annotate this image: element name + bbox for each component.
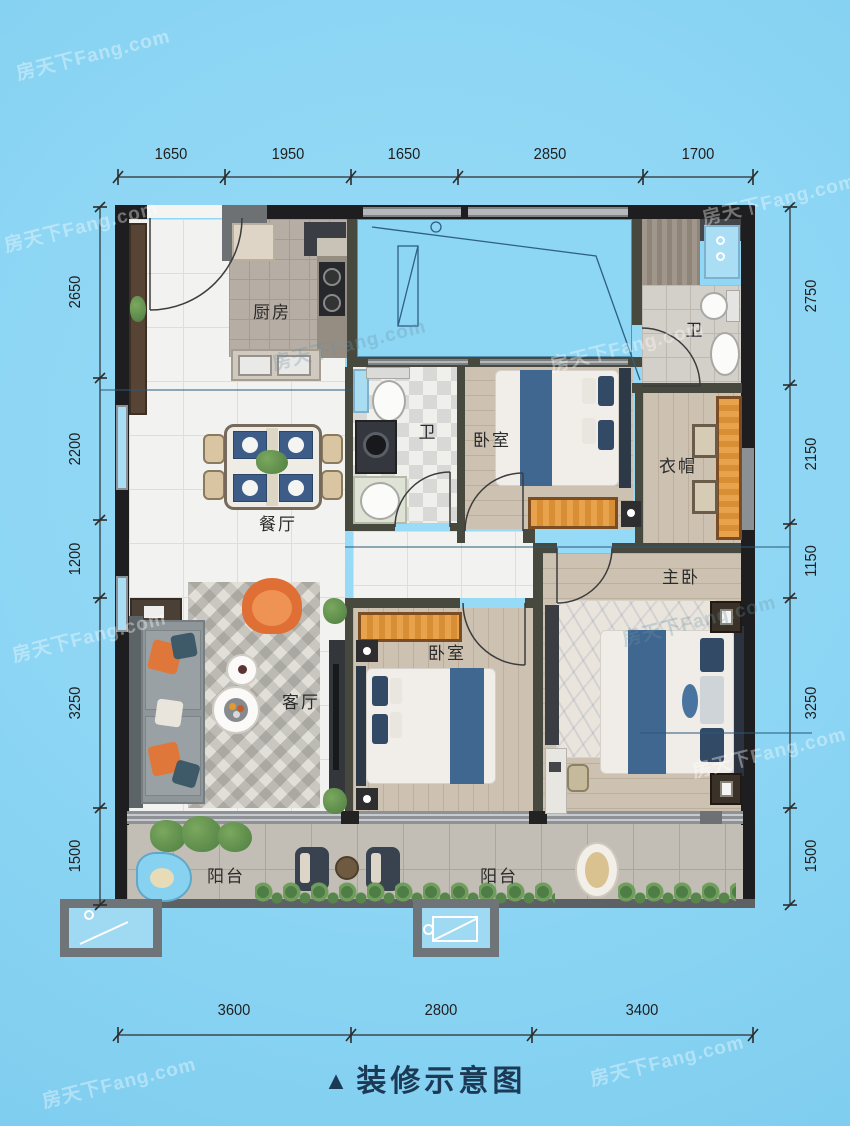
dimension-and-annotation-lines [0,0,850,1126]
room-label-balcony-left: 阳台 [192,862,260,887]
floorplan-scene: 1650 1950 1650 2850 1700 2650 2200 1200 … [0,0,850,1126]
dim-right-4: 3250 [803,675,821,730]
room-label-master-bedroom: 主卧 [647,563,715,588]
dim-bottom-2: 2800 [413,1002,468,1020]
room-label-cloakroom: 衣帽 [644,452,712,477]
dim-bottom-1: 3600 [206,1002,261,1020]
dim-left-5: 1500 [67,828,85,883]
room-label-bath-middle: 卫 [416,418,440,443]
dim-top-2: 1950 [260,146,315,164]
room-label-dining: 餐厅 [244,510,312,535]
room-label-balcony-right: 阳台 [465,862,533,887]
dim-right-2: 2150 [803,426,821,481]
dim-top-1: 1650 [143,146,198,164]
dim-right-3: 1150 [803,533,821,588]
dim-left-1: 2650 [67,264,85,319]
room-label-bedroom-lower: 卧室 [413,639,481,664]
dim-top-4: 2850 [522,146,577,164]
dim-left-2: 2200 [67,421,85,476]
room-label-kitchen: 厨房 [238,298,306,323]
room-label-living-room: 客厅 [267,688,335,713]
caption-triangle-icon: ▲ [324,1067,349,1095]
dim-left-4: 3250 [67,675,85,730]
dim-right-1: 2750 [803,268,821,323]
caption-text: 装修示意图 [356,1065,526,1098]
room-label-bedroom-upper: 卧室 [458,426,526,451]
dim-bottom-3: 3400 [614,1002,669,1020]
dim-left-3: 1200 [67,531,85,586]
dim-right-5: 1500 [803,828,821,883]
dim-top-3: 1650 [376,146,431,164]
dim-top-5: 1700 [670,146,725,164]
